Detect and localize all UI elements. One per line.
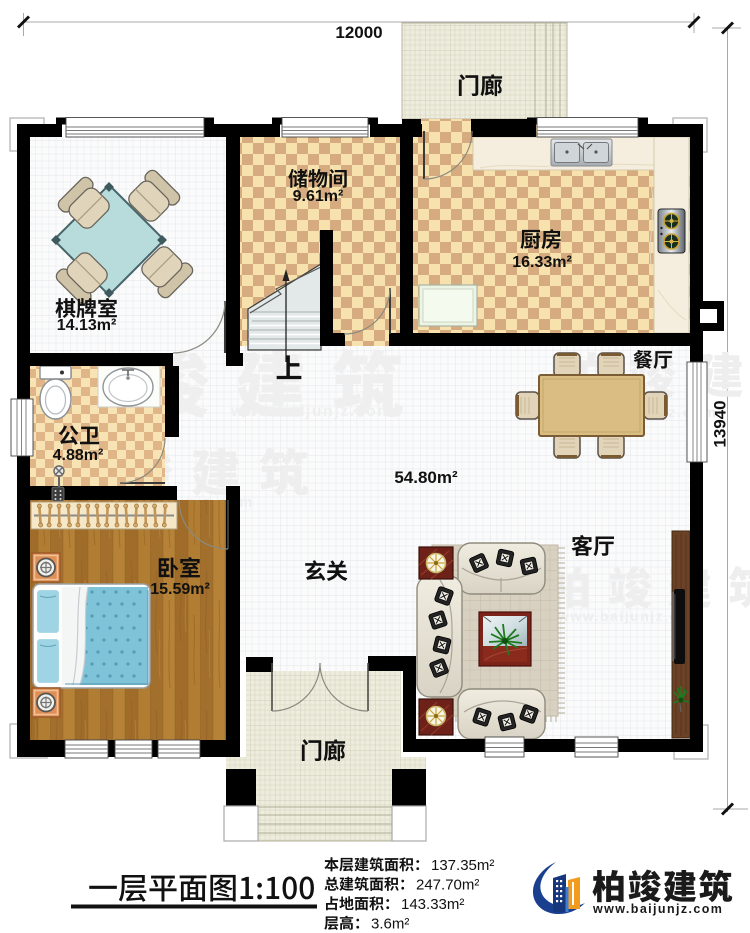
svg-text:54.80m²: 54.80m² <box>394 468 458 487</box>
svg-text:12000: 12000 <box>335 23 382 42</box>
svg-text:143.33m²: 143.33m² <box>401 896 464 913</box>
svg-text:14.13m²: 14.13m² <box>57 317 117 334</box>
svg-text:4.88m²: 4.88m² <box>53 447 104 464</box>
svg-text:137.35m²: 137.35m² <box>431 857 494 874</box>
svg-text:15.59m²: 15.59m² <box>150 581 210 598</box>
svg-text:3.6m²: 3.6m² <box>371 916 409 933</box>
svg-text:www.baijunjz.com: www.baijunjz.com <box>592 902 723 916</box>
svg-text:247.70m²: 247.70m² <box>416 877 479 894</box>
svg-text:www.baijunjz.com: www.baijunjz.com <box>230 403 393 420</box>
svg-text:9.61m²: 9.61m² <box>293 188 344 205</box>
svg-text:16.33m²: 16.33m² <box>512 254 572 271</box>
